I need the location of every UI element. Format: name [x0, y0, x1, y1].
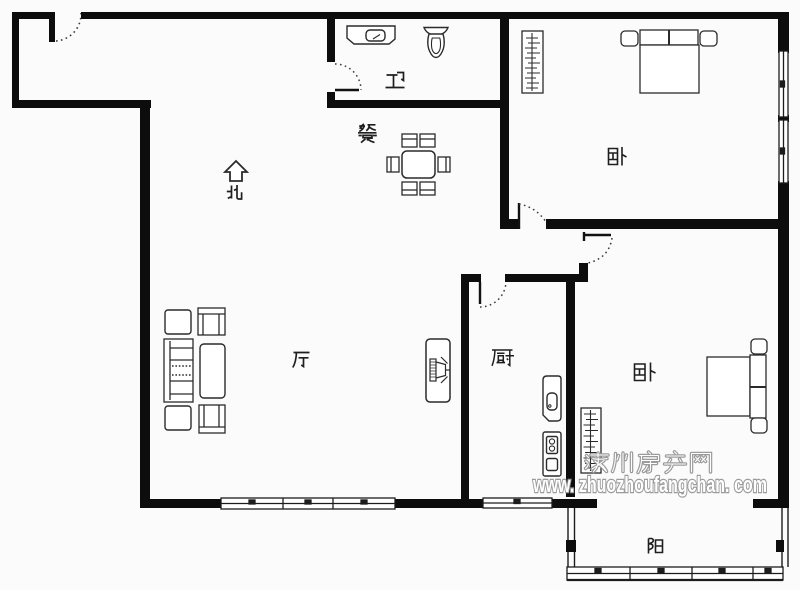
svg-text:www. zhuozhoufangchan. com: www. zhuozhoufangchan. com [532, 472, 767, 497]
